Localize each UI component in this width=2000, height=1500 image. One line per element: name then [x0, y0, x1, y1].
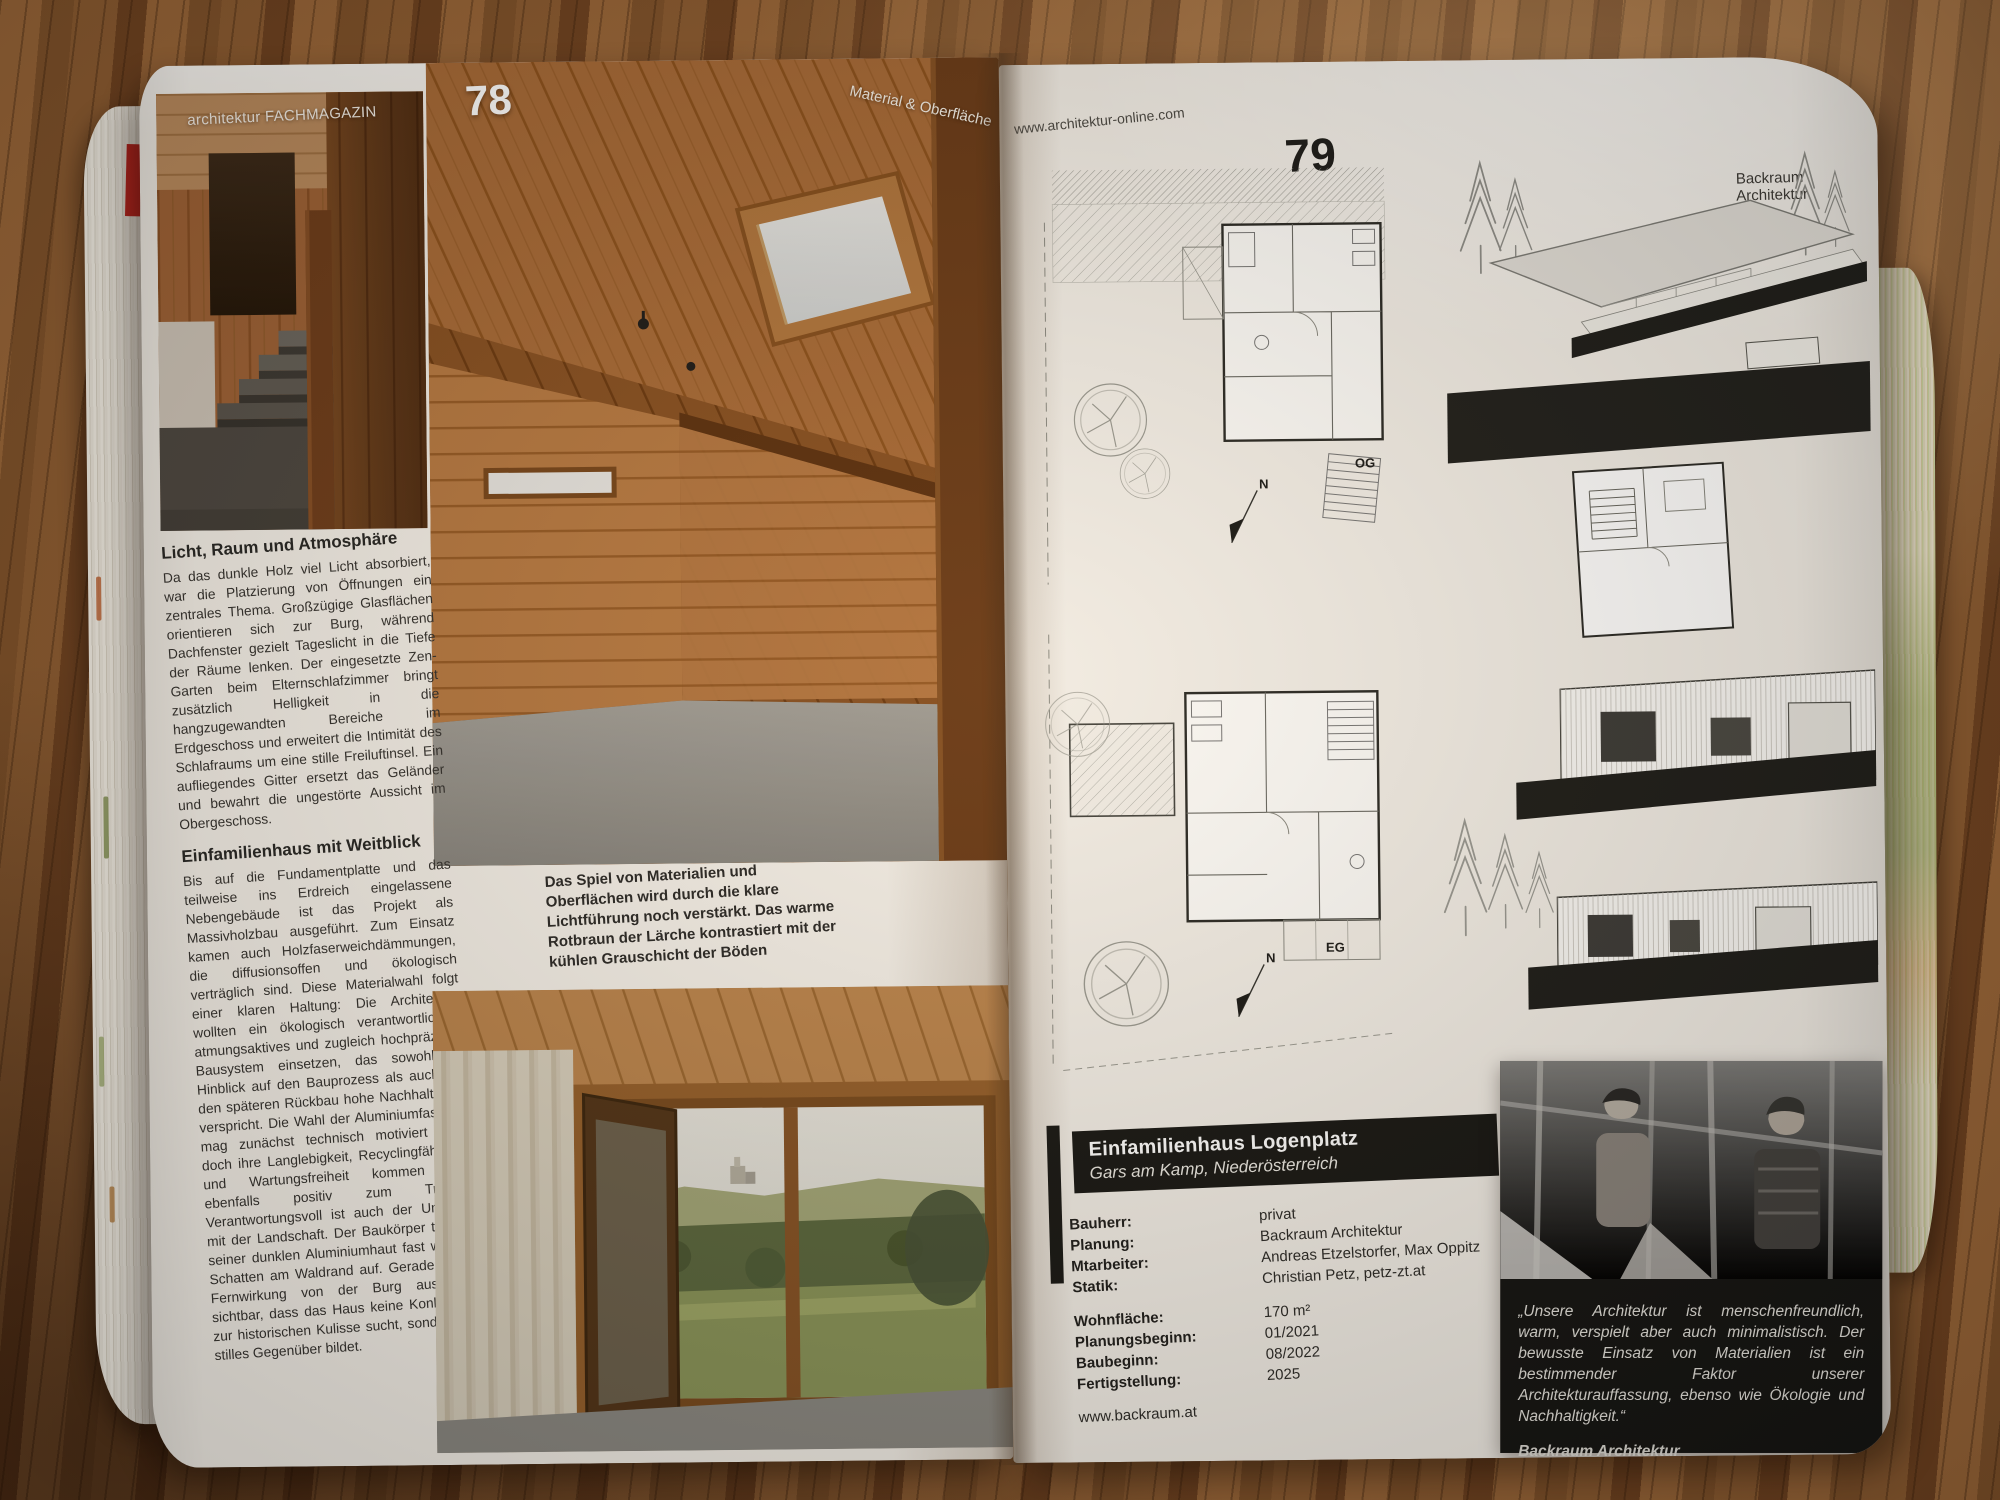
window-photo — [432, 985, 1013, 1453]
quote-attribution: Backraum Architektur — [1500, 1427, 1882, 1461]
lower-floor-plan: N — [1045, 689, 1380, 1026]
project-info-accent-bar — [1046, 1125, 1063, 1283]
quote-text: „Unsere Architektur ist menschenfreundli… — [1500, 1284, 1882, 1427]
floor-plans-drawing: N — [1030, 161, 1420, 1095]
fact-value: 2025 — [1266, 1363, 1300, 1386]
studio-website: www.backraum.at — [1078, 1388, 1518, 1426]
architects-photo — [1500, 1061, 1882, 1279]
renderings-graphic — [1420, 139, 1880, 1074]
page-edge-fleck — [96, 577, 101, 621]
north-arrow-label: N — [1259, 476, 1269, 491]
magazine-spread: architektur FACHMAGAZIN — [83, 35, 1953, 1484]
renderings-drawing — [1420, 139, 1880, 1074]
perspective-rendering — [1460, 153, 1864, 339]
page-edge-fleck — [103, 797, 109, 859]
upper-floor-plan: N — [1052, 167, 1388, 544]
page-number-78: 78 — [464, 75, 513, 125]
elevation-drawing-2 — [1527, 882, 1878, 1010]
elevation-drawing-1 — [1515, 670, 1877, 820]
north-arrow-label: N — [1266, 950, 1276, 965]
page-edge-fleck — [109, 1186, 114, 1222]
page-edge-fleck — [99, 1037, 105, 1087]
staircase-photo-graphic — [156, 91, 428, 531]
photo-caption: Das Spiel von Materialien und Oberfläche… — [544, 856, 851, 973]
north-arrow-icon: N — [1236, 950, 1276, 1016]
right-page: www.architektur-online.com 79 Backraum A… — [999, 56, 1892, 1463]
project-details-list: Bauherr: privat Planung: Backraum Archit… — [1069, 1193, 1519, 1426]
conifer-trees — [1444, 820, 1554, 936]
fact-value: 01/2021 — [1264, 1320, 1319, 1344]
article-paragraph-1: Da das dunkle Holz viel Licht absorbiert… — [162, 551, 447, 834]
upper-floor-plan-small — [1573, 463, 1733, 637]
magazine-website: www.architektur-online.com — [1013, 104, 1185, 137]
fact-value: 170 m² — [1263, 1300, 1311, 1323]
og-plan-label: OG — [1355, 455, 1375, 470]
fact-value: 08/2022 — [1265, 1341, 1320, 1365]
project-title-bar: Einfamilienhaus Logenplatz Gars am Kamp,… — [1072, 1114, 1499, 1194]
site-section-band — [1447, 337, 1871, 464]
north-arrow-icon: N — [1229, 476, 1269, 542]
window-photo-graphic — [432, 985, 1013, 1453]
staircase-photo — [156, 91, 428, 531]
floor-plans-graphic: N — [1030, 161, 1420, 1095]
detail-value: privat — [1259, 1203, 1297, 1226]
eg-plan-label: EG — [1326, 940, 1345, 955]
table-surface: architektur FACHMAGAZIN — [0, 0, 2000, 1500]
attic-photo — [426, 57, 1007, 866]
left-page: architektur FACHMAGAZIN — [139, 57, 1014, 1468]
attic-photo-graphic — [426, 57, 1007, 866]
quote-panel: „Unsere Architektur ist menschenfreundli… — [1500, 1061, 1882, 1453]
